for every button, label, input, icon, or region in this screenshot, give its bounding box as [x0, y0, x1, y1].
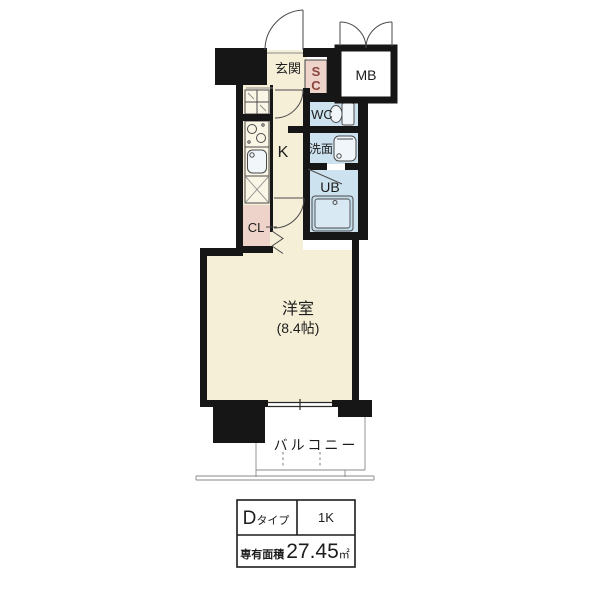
- kitchen-label: K: [278, 144, 289, 161]
- layout-cell: 1K: [318, 510, 334, 525]
- washroom-label: 洗面: [309, 142, 333, 156]
- meter-box-label: MB: [356, 67, 377, 83]
- entrance-door-arc: [265, 10, 303, 50]
- kitchen-fixtures: [245, 90, 269, 203]
- area-unit: ㎡: [339, 548, 350, 561]
- toilet-label: WC: [311, 107, 333, 122]
- type-letter: D: [243, 508, 257, 529]
- type-suffix: タイプ: [256, 514, 289, 527]
- type-cell: Dタイプ: [243, 508, 290, 529]
- area-label: 専有面積: [240, 547, 285, 561]
- spec-table: Dタイプ 1K 専有面積27.45㎡: [237, 500, 355, 567]
- shoe-closet-label-s: S: [312, 64, 321, 79]
- unit-bath-label: UB: [320, 179, 339, 195]
- bathtub-inner: [315, 199, 350, 228]
- balcony-label: バルコニー: [274, 437, 359, 453]
- main-room-label: 洋室: [282, 300, 314, 318]
- toilet-tank: [342, 103, 354, 125]
- meter-box: [338, 22, 394, 100]
- main-room-size-label: (8.4帖): [277, 320, 320, 336]
- shoe-closet-label-c: C: [311, 78, 321, 93]
- mb-door-arc-left: [340, 22, 366, 48]
- floorplan: 玄関 S C MB WC 洗面 UB K CL 洋室 (8.4帖) バルコニー …: [0, 0, 600, 600]
- entrance-label: 玄関: [275, 61, 301, 76]
- closet-label: CL: [248, 220, 265, 235]
- area-value: 27.45: [286, 540, 339, 563]
- area-cell: 専有面積27.45㎡: [240, 540, 350, 563]
- mb-door-arc-right: [366, 22, 392, 48]
